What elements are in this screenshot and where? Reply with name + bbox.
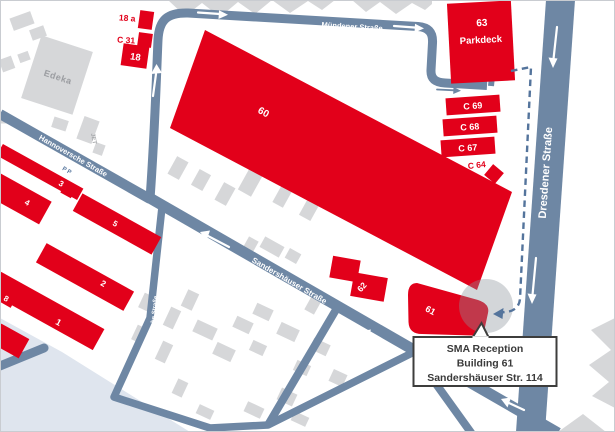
callout-pointer-join [473, 336, 489, 339]
arrow-right-muendener-1 [198, 13, 220, 15]
callout-line-2: Building 61 [457, 358, 514, 370]
reception-highlight-circle [459, 279, 513, 333]
label-18a: 18 a [119, 12, 136, 23]
arrow-right-parkdeck-access [437, 90, 454, 91]
sma-site-map: Hannoversche Straße Mündener Straße Sand… [0, 0, 615, 432]
building-18a [138, 10, 154, 30]
map-canvas: Hannoversche Straße Mündener Straße Sand… [0, 0, 615, 432]
label-18: 18 [129, 51, 141, 63]
label-c67: C 67 [458, 142, 478, 153]
label-c31: C 31 [117, 35, 136, 46]
label-63: 63 [476, 18, 488, 30]
label-c64: C 64 [467, 159, 486, 171]
label-c69: C 69 [463, 100, 483, 111]
label-63-parkdeck: Parkdeck [459, 34, 502, 47]
callout-line-3: Sandershäuser Str. 114 [427, 372, 543, 384]
label-c68: C 68 [460, 121, 480, 132]
callout-line-1: SMA Reception [447, 343, 524, 355]
